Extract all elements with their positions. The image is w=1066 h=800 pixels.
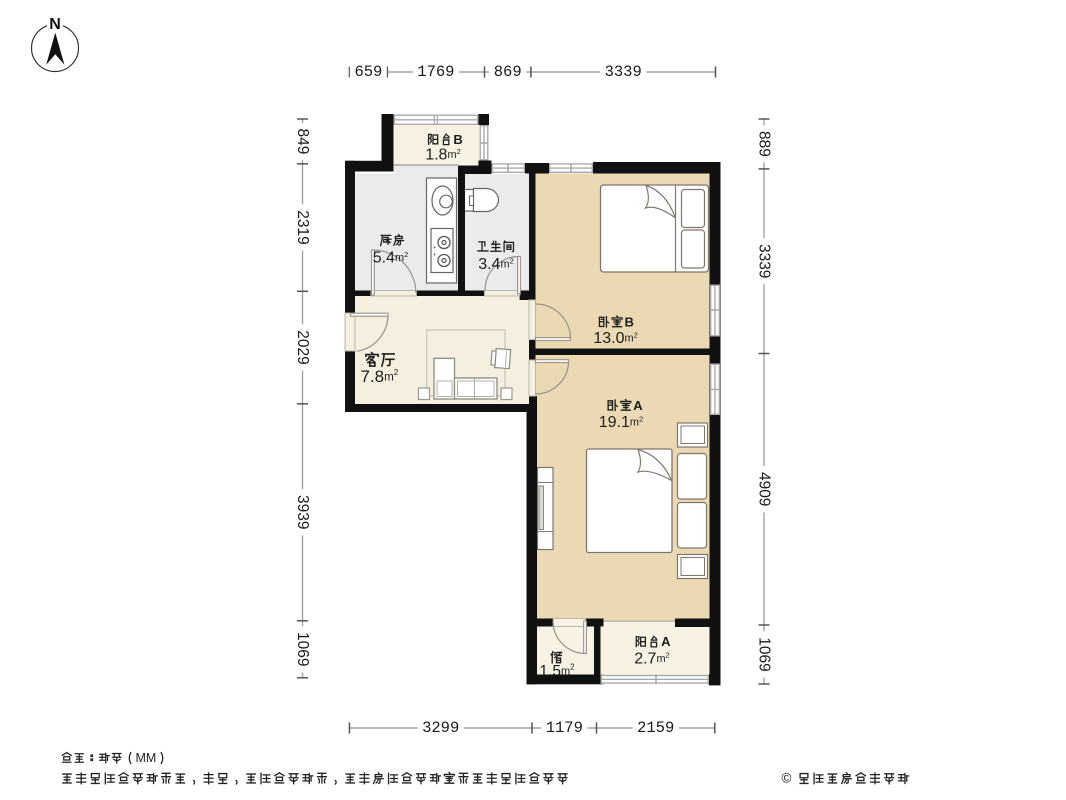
- svg-text:2319: 2319: [294, 210, 311, 244]
- svg-text:1179: 1179: [546, 719, 583, 737]
- svg-text:2.7m2: 2.7m2: [634, 650, 670, 667]
- svg-text:2159: 2159: [637, 719, 674, 737]
- svg-text:2029: 2029: [294, 330, 311, 364]
- svg-text:1069: 1069: [756, 637, 773, 671]
- svg-text:5.4m2: 5.4m2: [373, 249, 409, 266]
- svg-text:19.1m2: 19.1m2: [599, 414, 644, 431]
- svg-text:3339: 3339: [605, 63, 642, 81]
- svg-text:1.8m2: 1.8m2: [425, 146, 461, 163]
- svg-text:©: ©: [782, 771, 792, 786]
- svg-text:3299: 3299: [422, 719, 459, 737]
- svg-text:849: 849: [294, 128, 311, 154]
- svg-text:B: B: [453, 132, 462, 147]
- svg-text:A: A: [633, 398, 643, 413]
- svg-text:13.0m2: 13.0m2: [593, 330, 638, 347]
- svg-text:3339: 3339: [756, 244, 773, 278]
- svg-text:N: N: [49, 16, 61, 33]
- svg-text:659: 659: [354, 63, 382, 81]
- svg-text:3.4m2: 3.4m2: [478, 256, 514, 273]
- svg-text:3939: 3939: [294, 495, 311, 529]
- svg-text:MM: MM: [136, 751, 157, 765]
- svg-text:1069: 1069: [294, 632, 311, 666]
- svg-text:A: A: [661, 634, 671, 649]
- svg-text:4909: 4909: [756, 472, 773, 506]
- svg-text:B: B: [625, 315, 634, 330]
- svg-text:889: 889: [756, 131, 773, 157]
- svg-text:1769: 1769: [417, 63, 454, 81]
- svg-text:869: 869: [494, 63, 522, 81]
